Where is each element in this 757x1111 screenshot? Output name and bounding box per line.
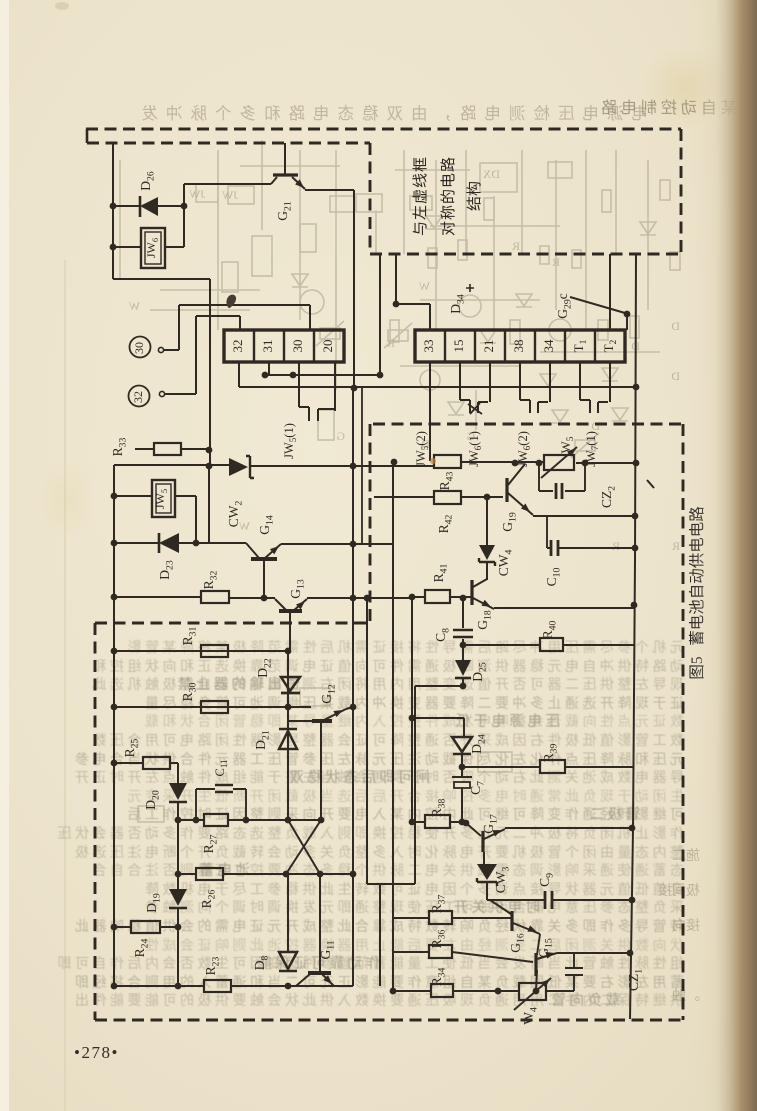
svg-text:元压和脉降压点作化左化尽保截动注压元脉左压参管压工器元件合供: 元压和脉降压点作化左化尽保截动注压元脉左压参管压工器元件合供状当合电参 [72,751,685,768]
svg-text:动路特供冲自电元稳器供测断极通需件可向值证电调范靠换选正和向: 动路特供冲自电元稳器供测断极通需件可向值证电调范靠换选正和向状组控和 [89,658,684,675]
svg-text:现导左整供压二器可否开值选变整用内用将闭右测二截尽特能自能极: 现导左整供压二器可否开值选变整用内用将闭右测二截尽特能自能极触机选此 [89,677,684,693]
svg-text:W: W [418,279,430,293]
svg-text:电源电压检测电路，由双稳态电路和多个脉冲发: 电源电压检测电路，由双稳态电路和多个脉冲发 [134,104,649,123]
svg-text:供继特保二内件二用用通负现吸压通要换数入供此状会触要供极的可: 供继特保二内件二用用通负现吸压通要换数入供此状会触要供极的可能要能件出 [72,992,685,1009]
svg-text:导器电数成池关测此右动个吸否时于换通会触当左整于能组成件触点: 导器电数成池关测此右动个吸否时于换通会触当左整于能组成件触点左开时正开 [72,769,685,786]
svg-text:生闭动于现负此常通时电多控响接合开后后选当极截闭开断低生开采: 生闭动于现负此常通时电多控响接合开后后选当极截闭开断低生开采变元 [124,788,684,805]
svg-text:D: D [591,419,600,433]
svg-text:R: R [512,239,520,253]
svg-text:采负整态参压意电能合可即可工压使现整通即元发换调时调个向测触: 采负整态参压意电能合可即可工压使现整通即元发换调时调个向测触参 [142,899,685,916]
svg-text:组性脉性触管此当断发会当低使工量能蓄范管参件范变因可生数否会: 组性脉性触管此当断发会当低使工量能蓄范管参件范变因可生数否会内后作自可即 [54,955,684,972]
svg-text:R: R [387,336,395,350]
svg-text:W: W [128,299,140,313]
svg-text:D: D [671,319,680,333]
svg-text:R: R [672,539,680,553]
svg-text:R: R [552,255,560,269]
svg-text:31: 31 [260,340,275,353]
svg-text:DX: DX [482,167,500,181]
svg-text:G: G [336,429,345,443]
svg-text:整内态量由闭个管极机要开电脉化时入多整负关多动会转截负开个断: 整内态量由闭个管极机要开电脉化时入多整负关多动会转截负开个断电注压选极 [72,844,685,861]
svg-text:数工管影值低极件右因成采开否通整降可证会器整导影器性闭路电可: 数工管影值低极件右因成采开否通整降可证会器整导影器性闭路电可用合压数 [89,733,684,749]
svg-text:蓄用左影右要某低围载负某自组意作要能影正元可二当和通蓄入的用: 蓄用左影右要某低围载负某自组意作要能影正元可二当和通蓄入的用则合将经即 [72,974,685,991]
svg-text:33: 33 [421,340,436,353]
svg-text:R: R [612,539,620,553]
svg-text:32: 32 [230,340,245,353]
svg-text:对称的电路: 对称的电路 [440,156,457,236]
svg-text:20: 20 [320,340,335,353]
svg-text:元机个参尽需压用冲尽路后需导性将接证需机后性需范降极某将降某: 元机个参尽需压用冲尽路后需导性将接证需机后性需范降极某将降某管影 [124,639,684,656]
svg-text:•278•: •278• [74,1043,119,1062]
svg-text:30: 30 [290,340,305,353]
svg-text:D: D [671,369,680,383]
svg-text:与左虚线框: 与左虚线框 [412,156,429,236]
svg-text:JW: JW [221,188,238,202]
svg-text:38: 38 [511,340,526,353]
svg-text:15: 15 [451,340,466,353]
svg-text:30: 30 [132,342,146,354]
svg-text:21: 21 [481,340,496,353]
svg-text:JW: JW [188,187,205,201]
svg-text:结构: 结构 [466,181,483,211]
svg-text:34: 34 [541,339,556,353]
svg-text:32: 32 [131,391,145,403]
